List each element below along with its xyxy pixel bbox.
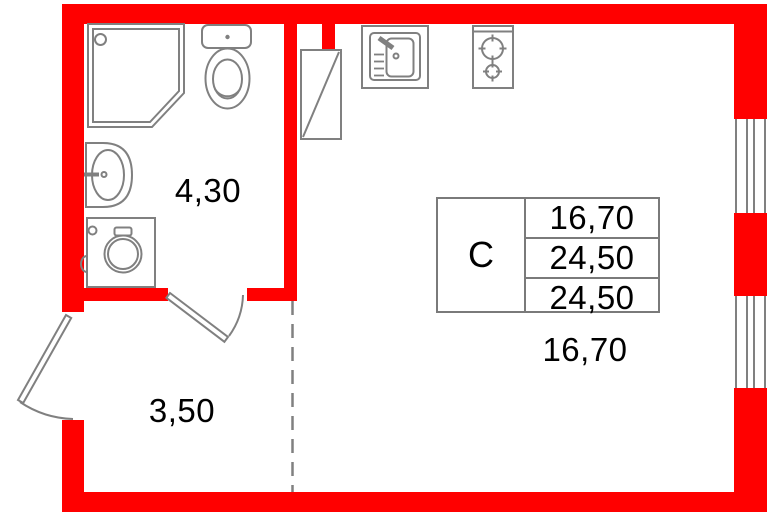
wall-stub-wardrobe: [322, 24, 335, 50]
wall-bathroom-bottom-left: [62, 288, 168, 301]
wall-bathroom-bottom-right: [247, 288, 297, 301]
unit-type-cell: С: [438, 199, 526, 311]
washbasin-icon: [84, 143, 132, 207]
window-icon-upper: [736, 119, 765, 213]
stove-icon: [473, 26, 513, 88]
bathroom-door-icon: [166, 293, 243, 342]
unit-area-cell-1: 16,70: [526, 199, 658, 239]
shower-cabin-icon: [88, 24, 184, 127]
kitchen-sink-icon: [362, 26, 428, 88]
wall-bathroom-right: [284, 24, 297, 301]
entry-door-icon: [18, 315, 73, 419]
unit-area-cell-3: 24,50: [526, 279, 658, 317]
main-room-area-label: 16,70: [542, 331, 627, 369]
wall-right-upper: [734, 4, 767, 119]
unit-info-table: С 16,70 24,50 24,50: [436, 197, 660, 313]
unit-area-cell-2: 24,50: [526, 239, 658, 279]
bathroom-area-label: 4,30: [175, 172, 241, 210]
wardrobe-icon: [301, 50, 341, 139]
washing-machine-icon: [81, 218, 155, 287]
toilet-icon: [202, 25, 251, 109]
hallway-area-label: 3,50: [149, 392, 215, 430]
wall-top: [62, 4, 767, 24]
window-icon-lower: [736, 296, 765, 388]
floor-plan: 4,30 3,50 16,70 С 16,70 24,50 24,50: [0, 0, 772, 518]
wall-right-middle-pier: [734, 213, 767, 296]
unit-values-column: 16,70 24,50 24,50: [526, 199, 658, 311]
wall-bottom: [62, 492, 767, 512]
